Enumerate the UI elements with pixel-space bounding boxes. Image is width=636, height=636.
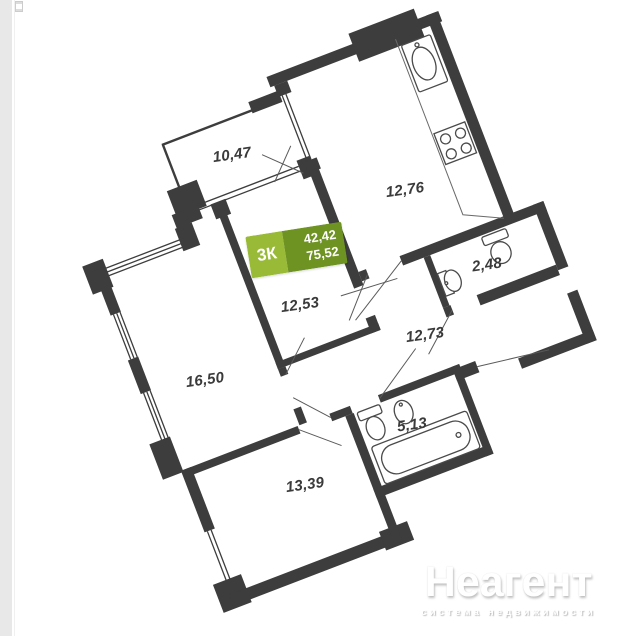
wc-walls [392, 201, 597, 398]
badge-total-area: 75,52 [305, 244, 340, 266]
floor-plan-image: 10,4712,762,4812,5312,7316,505,1313,39 3… [0, 0, 636, 636]
badge-room-count-cell: 3К [245, 231, 288, 278]
floor-plan-geometry [38, 0, 636, 616]
floor-plan-svg [0, 0, 636, 636]
bedroom-1-walls [179, 69, 412, 370]
badge-room-count: 3К [256, 243, 279, 266]
living-room-walls [76, 209, 275, 479]
